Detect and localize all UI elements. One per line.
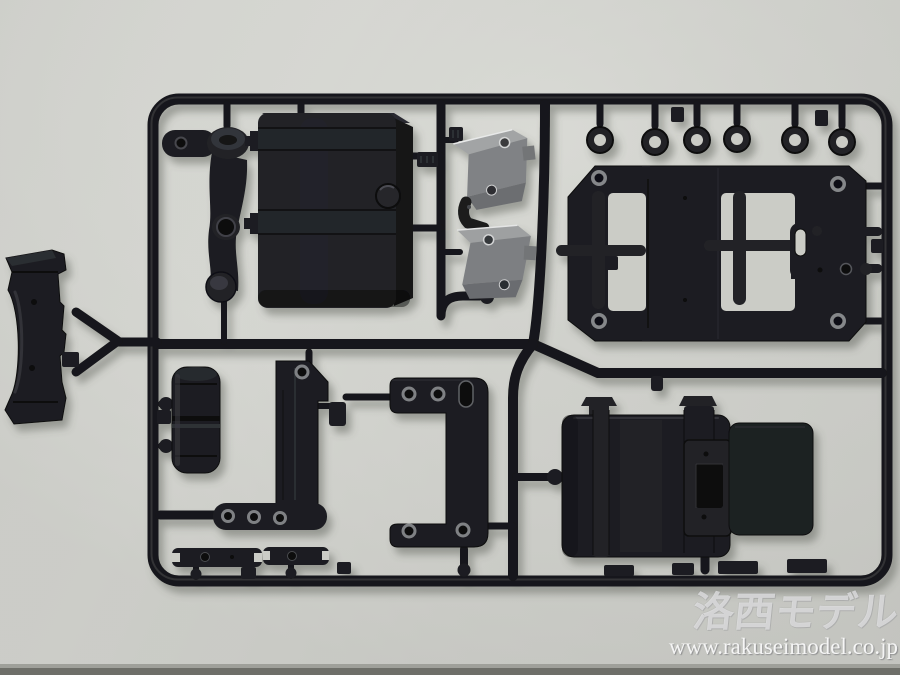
flat-panel-part [729,423,813,535]
eyelet [642,129,668,155]
table-edge-shadow [0,668,900,675]
eyelet [829,129,855,155]
link-bar-parts [172,547,329,567]
eyelet [684,127,710,153]
eyelet [782,127,808,153]
cylinder-tank-part [172,367,220,473]
battery-box-part [562,396,731,557]
fuel-tank-part [244,113,413,308]
link-bar [263,547,329,565]
filler-cap [376,184,400,208]
eyelet [724,126,750,152]
eyelet [587,127,613,153]
link-bar [172,548,262,567]
sprue-photo-svg [0,0,900,675]
frame-plate-part [556,166,866,341]
sprue-photo: 洛西モデル www.rakuseimodel.co.jp [0,0,900,675]
